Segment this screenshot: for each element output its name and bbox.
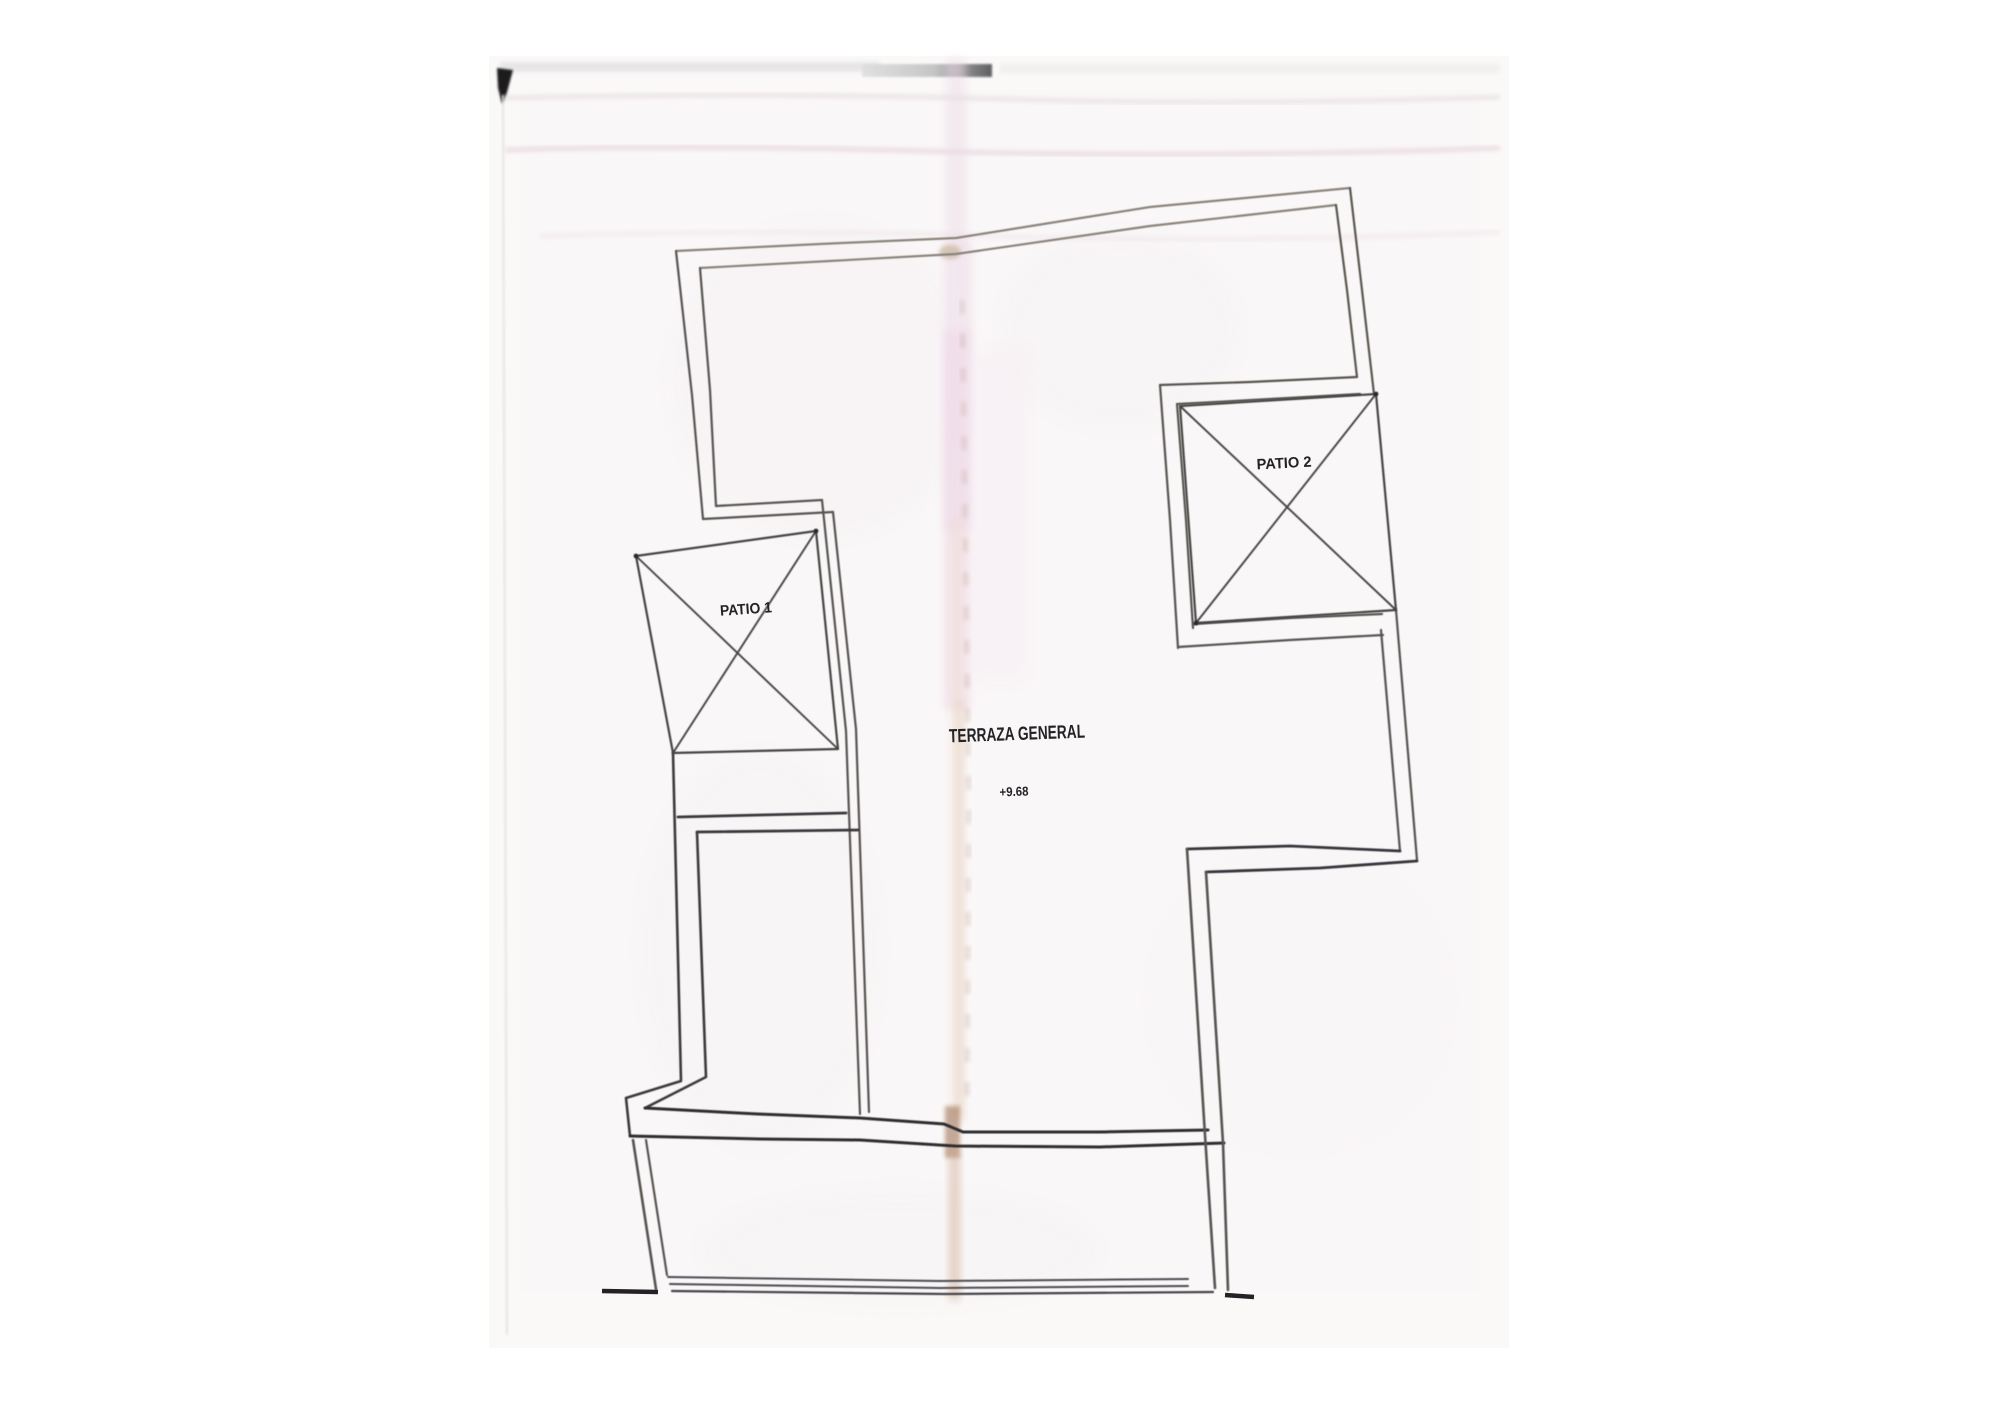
svg-text:PATIO 2: PATIO 2	[1256, 454, 1312, 474]
svg-text:+9.68: +9.68	[999, 783, 1029, 799]
svg-text:PATIO 1: PATIO 1	[719, 599, 772, 620]
